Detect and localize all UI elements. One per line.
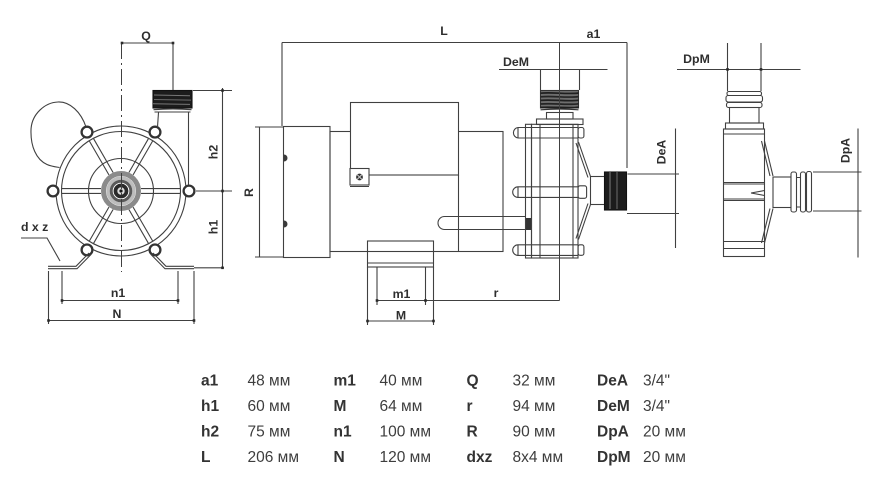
svg-text:Q: Q bbox=[141, 29, 151, 43]
svg-text:DeA: DeA bbox=[597, 373, 628, 390]
svg-text:DeM: DeM bbox=[597, 398, 630, 415]
svg-text:R: R bbox=[467, 424, 478, 441]
svg-text:h1: h1 bbox=[207, 220, 221, 235]
svg-text:20 мм: 20 мм bbox=[643, 424, 686, 441]
svg-text:r: r bbox=[467, 398, 473, 415]
svg-text:N: N bbox=[334, 449, 345, 466]
svg-text:32 мм: 32 мм bbox=[513, 373, 556, 390]
svg-text:L: L bbox=[440, 24, 448, 38]
svg-text:n1: n1 bbox=[111, 286, 126, 300]
svg-text:3/4": 3/4" bbox=[643, 373, 670, 390]
svg-text:48 мм: 48 мм bbox=[248, 373, 291, 390]
svg-text:M: M bbox=[396, 309, 406, 323]
svg-text:DeA: DeA bbox=[655, 140, 669, 165]
svg-text:60 мм: 60 мм bbox=[248, 398, 291, 415]
svg-text:DpA: DpA bbox=[597, 424, 629, 441]
svg-text:a1: a1 bbox=[587, 27, 601, 41]
svg-text:N: N bbox=[113, 307, 122, 321]
svg-text:a1: a1 bbox=[201, 373, 219, 390]
svg-text:94 мм: 94 мм bbox=[513, 398, 556, 415]
svg-text:100 мм: 100 мм bbox=[380, 424, 431, 441]
svg-text:40 мм: 40 мм bbox=[380, 373, 423, 390]
svg-text:h2: h2 bbox=[207, 145, 221, 160]
svg-text:h2: h2 bbox=[201, 424, 219, 441]
svg-text:r: r bbox=[494, 286, 499, 300]
svg-text:75 мм: 75 мм bbox=[248, 424, 291, 441]
svg-text:R: R bbox=[242, 188, 256, 197]
svg-text:64 мм: 64 мм bbox=[380, 398, 423, 415]
svg-text:DpM: DpM bbox=[683, 52, 710, 66]
svg-text:DpM: DpM bbox=[597, 449, 631, 466]
svg-text:8x4 мм: 8x4 мм bbox=[513, 449, 564, 466]
svg-text:n1: n1 bbox=[334, 424, 352, 441]
svg-text:dxz: dxz bbox=[467, 449, 493, 466]
svg-text:Q: Q bbox=[467, 373, 479, 390]
svg-text:DpA: DpA bbox=[839, 138, 853, 163]
svg-text:d x z: d x z bbox=[21, 220, 48, 234]
svg-text:120 мм: 120 мм bbox=[380, 449, 431, 466]
svg-text:90 мм: 90 мм bbox=[513, 424, 556, 441]
svg-text:3/4": 3/4" bbox=[643, 398, 670, 415]
svg-text:L: L bbox=[201, 449, 210, 466]
svg-text:m1: m1 bbox=[393, 287, 411, 301]
svg-text:m1: m1 bbox=[334, 373, 357, 390]
svg-text:20 мм: 20 мм bbox=[643, 449, 686, 466]
svg-text:DeM: DeM bbox=[503, 55, 529, 69]
svg-text:M: M bbox=[334, 398, 347, 415]
svg-text:h1: h1 bbox=[201, 398, 219, 415]
svg-text:206 мм: 206 мм bbox=[248, 449, 299, 466]
